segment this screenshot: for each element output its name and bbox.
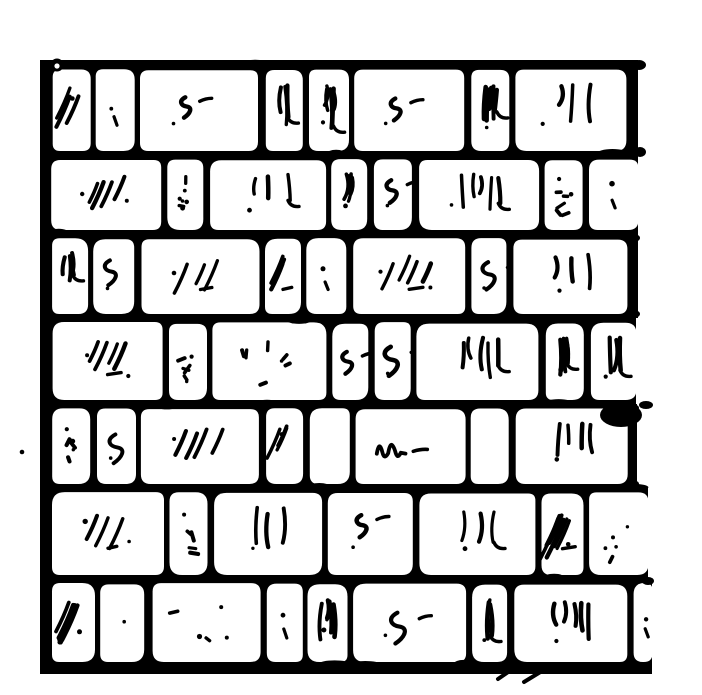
brick-wall-illustration bbox=[0, 0, 702, 695]
engraving-panel bbox=[0, 0, 702, 695]
